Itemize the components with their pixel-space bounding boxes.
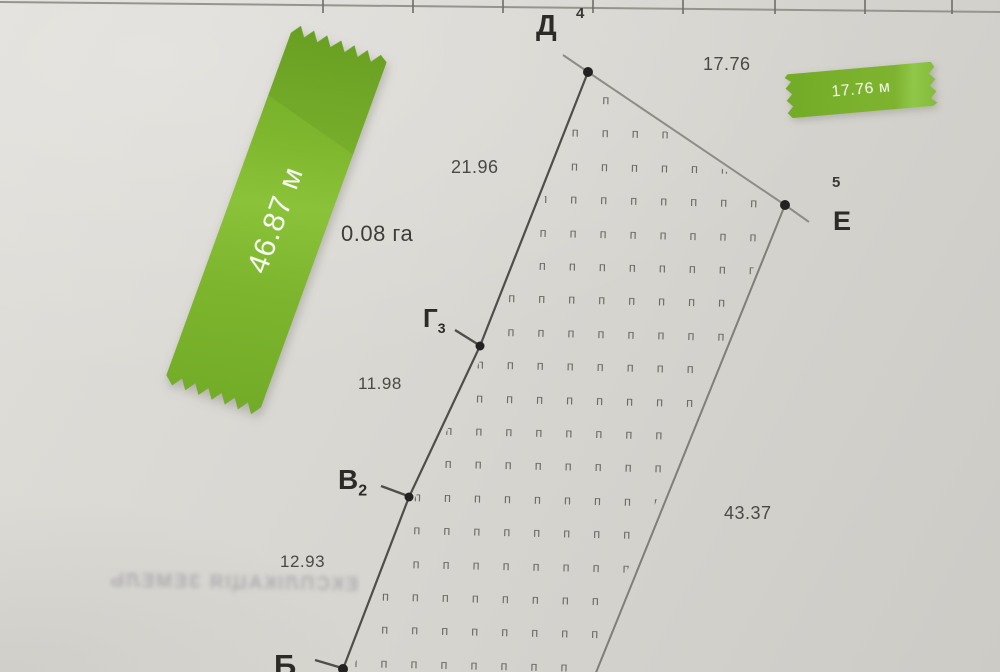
leader-line-v2 xyxy=(381,486,408,496)
leader-line-b xyxy=(315,660,342,668)
vertex-index-g3: 3 xyxy=(438,320,446,336)
vertex-label-g3: Г3 xyxy=(423,305,446,335)
tape-sticker-top-right-label: 17.76 м xyxy=(831,79,891,100)
vertex-letter-g: Г xyxy=(423,303,438,333)
length-label-d-g3: 21.96 xyxy=(451,158,499,176)
parcel-area-label: 0.08 га xyxy=(341,223,413,245)
length-label-e-south: 43.37 xyxy=(724,504,772,522)
vertex-dot-v2 xyxy=(405,493,414,502)
vertex-dot-d xyxy=(583,67,593,77)
boundary-line-e-south xyxy=(593,205,785,672)
cadastral-plan-photo: ЕКСПЛІКАЦІЯ ЗЕМЕЛЬ ппппппппппппппппппппп… xyxy=(0,0,1000,672)
vertex-label-v2: В2 xyxy=(338,466,367,500)
tape-sticker-left-label: 46.87 м xyxy=(243,163,309,278)
vertex-label-b: Б xyxy=(274,650,296,672)
vertex-point-number-d: 4 xyxy=(576,6,584,21)
length-label-d-e: 17.76 xyxy=(703,55,751,73)
vertex-label-e: Е xyxy=(833,208,851,235)
vertex-label-d: Д xyxy=(536,12,557,41)
boundary-line-d-e xyxy=(563,55,809,222)
vertex-point-number-e: 5 xyxy=(832,175,840,190)
vertex-letter-v: В xyxy=(338,464,358,495)
vertex-dot-b xyxy=(338,664,348,672)
length-label-g3-v2: 11.98 xyxy=(358,375,402,392)
sheet-edge-ruler-line xyxy=(0,2,1000,12)
length-label-v2-b: 12.93 xyxy=(280,553,325,570)
vertex-index-v2: 2 xyxy=(358,483,367,500)
vertex-dot-g3 xyxy=(476,342,485,351)
vertex-dot-e xyxy=(780,200,790,210)
leader-line-g3 xyxy=(455,330,479,345)
